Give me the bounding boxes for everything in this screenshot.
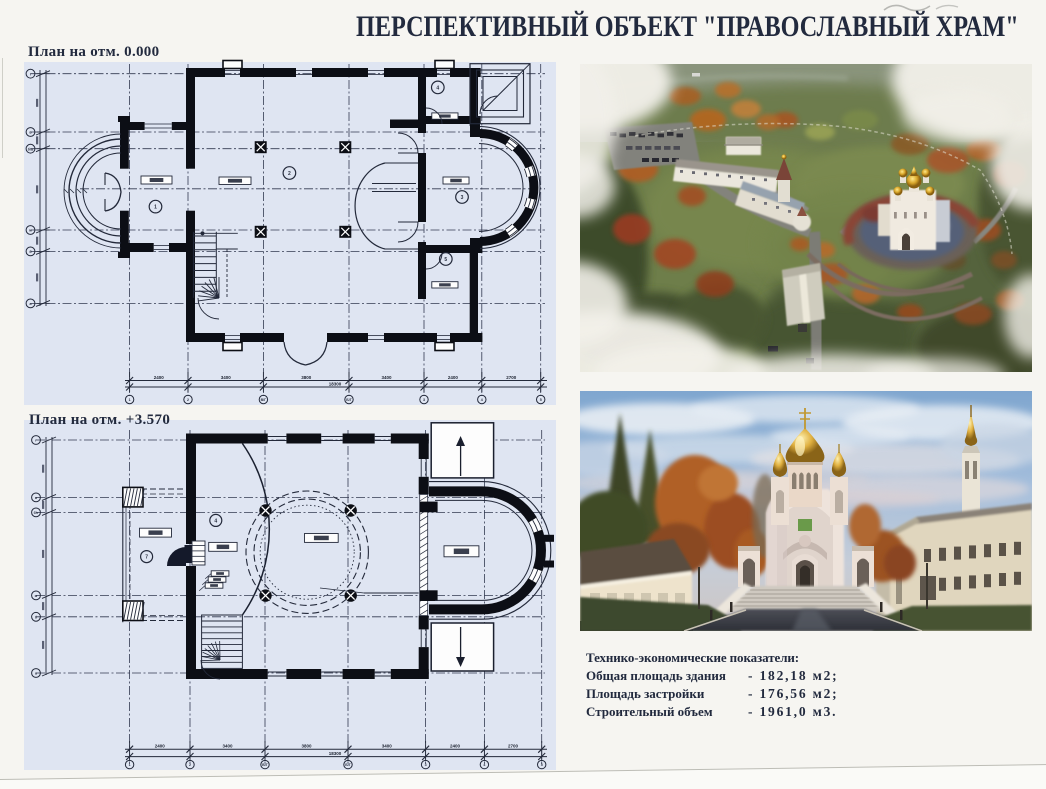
svg-text:Б/Г: Б/Г (346, 398, 352, 402)
svg-text:Б/Г: Б/Г (345, 763, 351, 767)
svg-text:4: 4 (481, 398, 483, 402)
svg-text:3800: 3800 (301, 744, 312, 749)
svg-text:1: 1 (154, 205, 157, 211)
svg-text:2: 2 (189, 763, 191, 767)
svg-text:5: 5 (541, 763, 543, 767)
svg-text:7: 7 (145, 555, 148, 561)
svg-text:3: 3 (425, 763, 427, 767)
svg-text:м: м (29, 229, 32, 233)
svg-text:1: 1 (129, 763, 131, 767)
svg-text:3400: 3400 (221, 375, 232, 380)
svg-text:2700: 2700 (508, 744, 519, 749)
svg-text:2400: 2400 (155, 744, 166, 749)
svg-text:б/в: б/в (28, 147, 34, 151)
svg-text:2400: 2400 (154, 375, 165, 380)
svg-text:3400: 3400 (382, 744, 393, 749)
svg-text:18300: 18300 (329, 751, 342, 756)
svg-text:2400: 2400 (448, 375, 459, 380)
svg-text:3400: 3400 (381, 375, 392, 380)
svg-text:3800: 3800 (301, 375, 312, 380)
svg-text:5: 5 (444, 257, 447, 263)
svg-text:4: 4 (483, 763, 485, 767)
svg-text:2400: 2400 (450, 744, 461, 749)
svg-text:2: 2 (288, 171, 291, 177)
svg-text:5: 5 (540, 398, 542, 402)
svg-text:2700: 2700 (506, 375, 517, 380)
svg-text:б/г: б/г (34, 511, 39, 515)
svg-text:18300: 18300 (329, 381, 342, 386)
svg-text:4: 4 (436, 85, 439, 91)
svg-text:м: м (35, 594, 38, 598)
svg-text:3: 3 (461, 195, 464, 201)
svg-text:1: 1 (129, 398, 131, 402)
svg-text:В/Г: В/Г (261, 398, 267, 402)
svg-text:3400: 3400 (222, 744, 233, 749)
svg-text:3: 3 (423, 398, 425, 402)
svg-text:В/Г: В/Г (262, 763, 268, 767)
svg-text:2: 2 (187, 398, 189, 402)
svg-text:4: 4 (214, 518, 217, 524)
